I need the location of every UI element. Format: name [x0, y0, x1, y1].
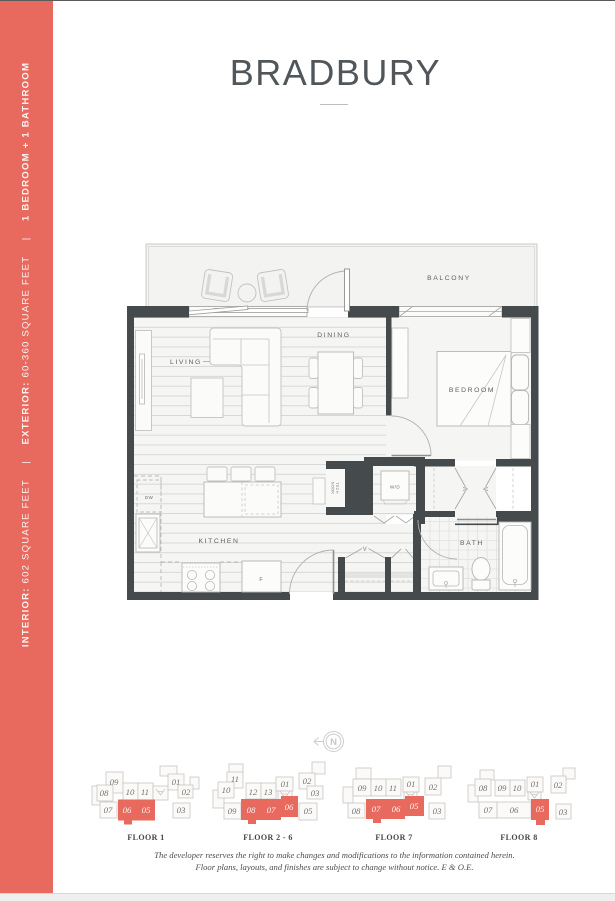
- svg-text:TECHNOOK: TECHNOOK: [331, 482, 339, 495]
- svg-text:05: 05: [410, 801, 419, 811]
- svg-text:10: 10: [513, 783, 522, 793]
- svg-text:06: 06: [392, 804, 401, 814]
- svg-text:DW: DW: [145, 495, 154, 500]
- svg-text:08: 08: [247, 805, 256, 815]
- svg-text:01: 01: [281, 779, 290, 789]
- svg-text:FLOOR 7: FLOOR 7: [375, 833, 412, 842]
- svg-text:02: 02: [303, 776, 312, 786]
- svg-text:03: 03: [433, 806, 442, 816]
- svg-text:05: 05: [536, 804, 545, 814]
- svg-text:09: 09: [228, 806, 237, 816]
- svg-text:10: 10: [222, 785, 231, 795]
- svg-text:12: 12: [249, 787, 258, 797]
- svg-text:07: 07: [484, 805, 493, 815]
- svg-text:06: 06: [510, 805, 519, 815]
- svg-text:09: 09: [358, 783, 367, 793]
- svg-text:N: N: [330, 737, 337, 748]
- svg-text:06: 06: [285, 802, 294, 812]
- svg-text:02: 02: [182, 787, 191, 797]
- svg-text:FLOOR 1: FLOOR 1: [127, 833, 164, 842]
- svg-text:W/D: W/D: [390, 485, 400, 490]
- svg-text:10: 10: [126, 787, 135, 797]
- svg-text:01: 01: [407, 779, 416, 789]
- svg-text:DINING: DINING: [317, 332, 350, 339]
- svg-text:06: 06: [123, 805, 132, 815]
- svg-text:09: 09: [110, 777, 119, 787]
- svg-text:BEDROOM: BEDROOM: [449, 387, 495, 394]
- svg-text:08: 08: [100, 788, 109, 798]
- svg-text:11: 11: [231, 774, 239, 784]
- svg-text:08: 08: [479, 783, 488, 793]
- svg-text:07: 07: [372, 804, 381, 814]
- svg-text:13: 13: [264, 787, 273, 797]
- svg-text:01: 01: [172, 777, 181, 787]
- svg-text:02: 02: [554, 780, 563, 790]
- svg-text:10: 10: [374, 783, 383, 793]
- svg-text:05: 05: [142, 805, 151, 815]
- svg-text:FLOOR 8: FLOOR 8: [500, 833, 537, 842]
- svg-text:11: 11: [389, 783, 397, 793]
- svg-text:09: 09: [498, 783, 507, 793]
- svg-text:BATH: BATH: [460, 540, 484, 547]
- svg-text:03: 03: [559, 807, 568, 817]
- svg-text:02: 02: [429, 782, 438, 792]
- svg-text:FLOOR 2 - 6: FLOOR 2 - 6: [243, 833, 293, 842]
- svg-text:07: 07: [104, 805, 113, 815]
- svg-text:01: 01: [531, 779, 540, 789]
- svg-text:03: 03: [311, 788, 320, 798]
- svg-text:07: 07: [267, 805, 276, 815]
- svg-text:08: 08: [352, 806, 361, 816]
- svg-text:03: 03: [177, 805, 186, 815]
- svg-text:KITCHEN: KITCHEN: [198, 538, 239, 545]
- svg-text:LIVING: LIVING: [170, 359, 202, 366]
- svg-text:05: 05: [304, 806, 313, 816]
- svg-text:11: 11: [141, 787, 149, 797]
- svg-text:BALCONY: BALCONY: [427, 275, 471, 282]
